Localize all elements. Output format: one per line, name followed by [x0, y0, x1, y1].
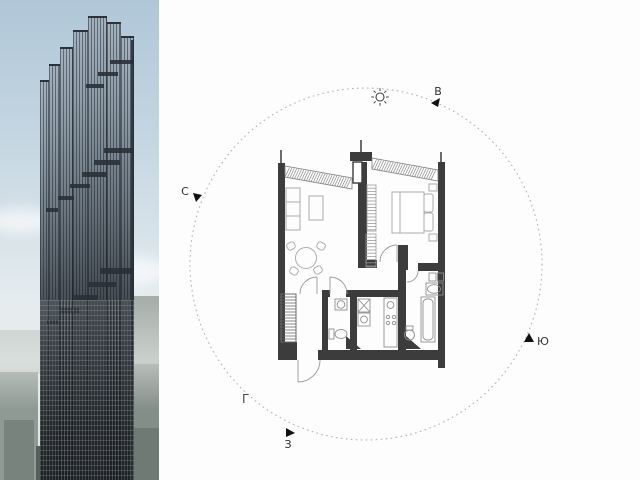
pillow [424, 194, 433, 212]
toilet-tank [329, 329, 334, 339]
chair [313, 265, 323, 275]
bathroom-door-arc [330, 277, 347, 294]
chair [289, 266, 299, 276]
north-arrow-icon [193, 193, 202, 202]
dining-table [296, 248, 317, 269]
nightstand [429, 234, 437, 241]
shaft-box [353, 162, 362, 183]
cooktop-burner [386, 321, 389, 324]
pillow [424, 213, 433, 231]
glazing-band-living [285, 166, 352, 189]
ensuite-door-arc [407, 271, 418, 282]
compass-label-east: В [434, 85, 442, 98]
sun-icon [371, 88, 389, 106]
cabinet [429, 273, 436, 281]
glazing-band-bedroom [372, 158, 438, 181]
bed [392, 192, 424, 233]
compass-label-west: З [284, 438, 291, 451]
fixtures [329, 273, 444, 347]
toilet-bowl [335, 330, 347, 339]
entrance-door-arc [298, 360, 320, 382]
ensuite-toilet-tank [406, 326, 413, 330]
floor-plan: С В Ю З Г [0, 0, 640, 480]
listing-image: С В Ю З Г [0, 0, 640, 480]
compass-label-south: Ю [537, 335, 549, 348]
west-arrow-icon [286, 428, 295, 437]
nightstand [429, 184, 437, 191]
cooktop-burner [392, 321, 395, 324]
compass-label-north: С [181, 185, 189, 198]
side-table [309, 196, 323, 220]
shelf-unit [286, 188, 300, 230]
washer [358, 313, 370, 326]
bedroom-door-arc [380, 245, 397, 262]
chair [286, 241, 296, 251]
wardrobe [366, 185, 376, 267]
cooktop-burner [386, 315, 389, 318]
kitchen-sink [387, 302, 394, 309]
bathtub-inner [423, 299, 433, 340]
bath-sink [337, 301, 345, 309]
corner-mark: Г [242, 392, 249, 406]
walls [278, 152, 445, 368]
cooktop-burner [392, 315, 395, 318]
chair [316, 241, 326, 251]
hall-door-arc [300, 277, 317, 294]
east-arrow-icon [431, 98, 440, 107]
